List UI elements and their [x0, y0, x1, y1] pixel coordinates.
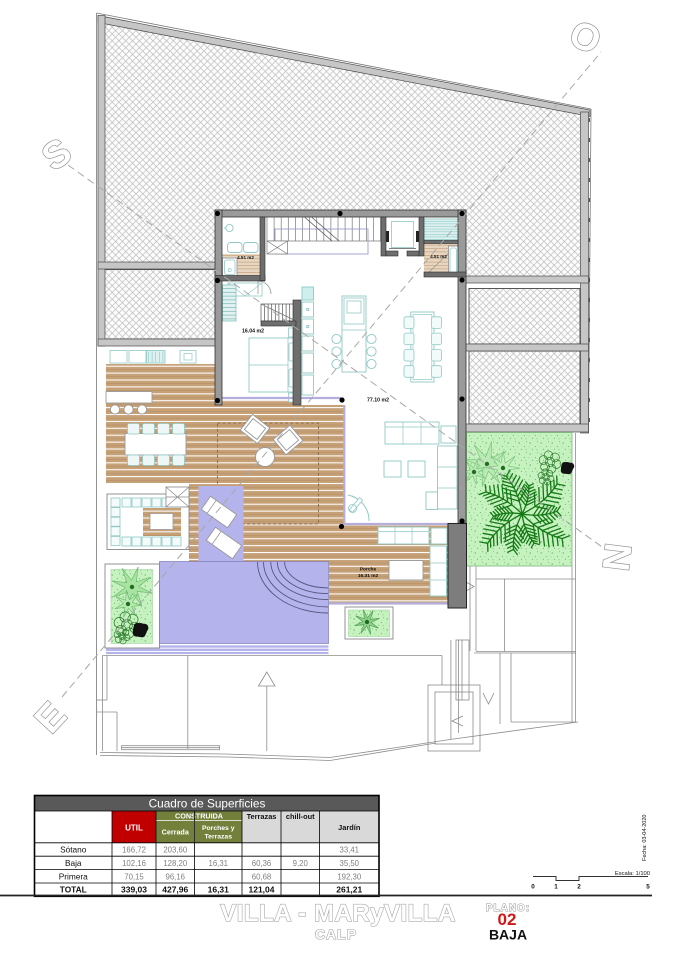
svg-text:60,36: 60,36 [252, 859, 272, 868]
svg-text:VILLA - MARyVILLA: VILLA - MARyVILLA [220, 900, 456, 927]
svg-text:5: 5 [646, 884, 650, 891]
svg-text:Cerrada: Cerrada [162, 828, 190, 837]
svg-text:121,04: 121,04 [249, 885, 275, 895]
svg-text:Primera: Primera [59, 871, 88, 881]
svg-text:Fecha: 03-04-2020: Fecha: 03-04-2020 [642, 815, 648, 861]
svg-text:2: 2 [577, 884, 581, 891]
svg-text:Cuadro de Superficies: Cuadro de Superficies [149, 797, 266, 811]
svg-text:35,50: 35,50 [339, 859, 359, 868]
svg-text:128,20: 128,20 [163, 859, 188, 868]
svg-text:N: N [593, 541, 638, 573]
svg-text:Terrazas: Terrazas [247, 812, 277, 821]
svg-text:CONSTRUIDA: CONSTRUIDA [175, 811, 223, 820]
svg-text:33,41: 33,41 [339, 846, 359, 855]
svg-text:166,72: 166,72 [122, 846, 146, 855]
svg-text:Porches y: Porches y [202, 825, 235, 832]
svg-text:203,60: 203,60 [163, 846, 188, 855]
svg-text:Terrazas: Terrazas [205, 834, 233, 841]
svg-text:Sótano: Sótano [60, 845, 87, 855]
svg-text:Porche: Porche [360, 567, 377, 573]
svg-text:Escala: 1/100: Escala: 1/100 [615, 871, 650, 877]
svg-text:9,20: 9,20 [293, 859, 309, 868]
svg-text:427,96: 427,96 [162, 885, 188, 895]
svg-text:BAJA: BAJA [489, 927, 527, 943]
svg-text:16.31 m2: 16.31 m2 [358, 573, 379, 579]
svg-text:60,68: 60,68 [252, 872, 272, 881]
svg-text:4.51 m2: 4.51 m2 [237, 255, 254, 260]
svg-text:4.51 m2: 4.51 m2 [430, 254, 447, 259]
svg-text:96,16: 96,16 [165, 872, 185, 881]
svg-text:192,30: 192,30 [337, 872, 362, 881]
svg-text:339,03: 339,03 [121, 885, 147, 895]
svg-text:16,31: 16,31 [208, 885, 230, 895]
svg-text:UTIL: UTIL [125, 824, 143, 833]
svg-text:chill-out: chill-out [286, 812, 315, 821]
svg-text:1: 1 [554, 884, 558, 891]
svg-text:77.10 m2: 77.10 m2 [367, 398, 389, 404]
svg-text:16,31: 16,31 [208, 859, 228, 868]
svg-text:Jardín: Jardín [338, 823, 361, 832]
svg-text:102,16: 102,16 [122, 859, 146, 868]
svg-text:261,21: 261,21 [336, 885, 362, 895]
svg-text:TOTAL: TOTAL [60, 885, 87, 895]
svg-text:16.04 m2: 16.04 m2 [242, 329, 264, 335]
svg-text:0: 0 [531, 884, 535, 891]
svg-text:CALP: CALP [315, 926, 357, 942]
svg-text:Baja: Baja [65, 858, 82, 868]
svg-text:70,15: 70,15 [124, 872, 144, 881]
